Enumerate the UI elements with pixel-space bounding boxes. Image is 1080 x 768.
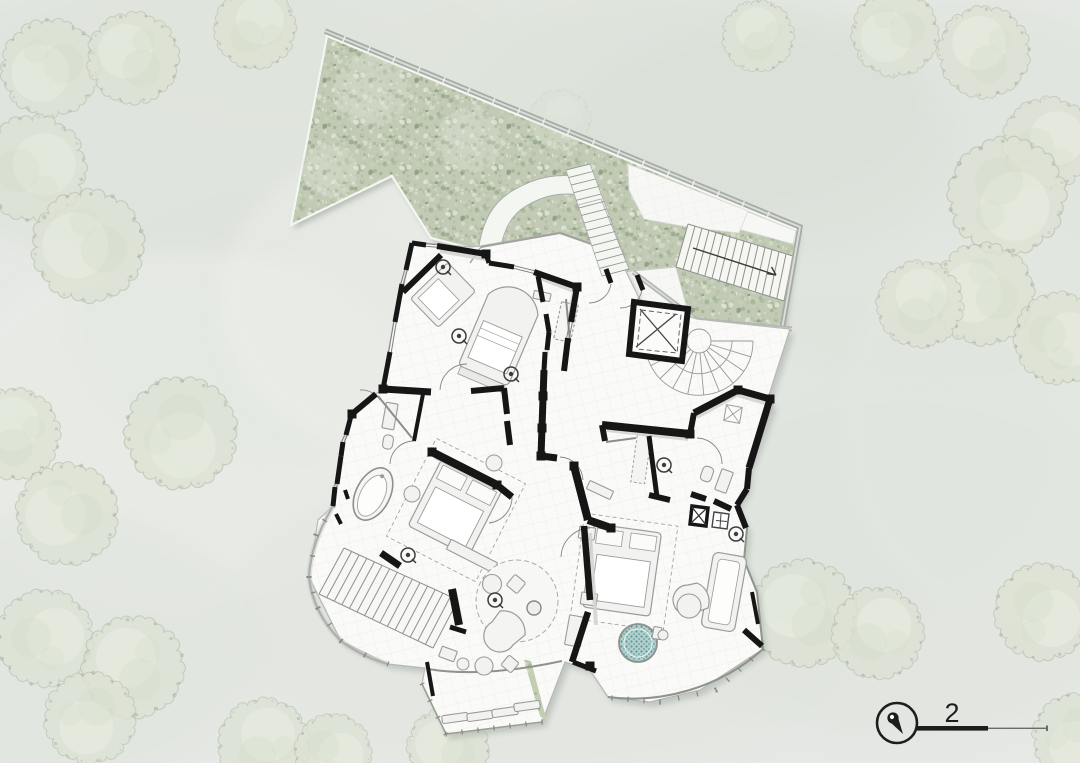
- svg-text:2: 2: [944, 698, 959, 728]
